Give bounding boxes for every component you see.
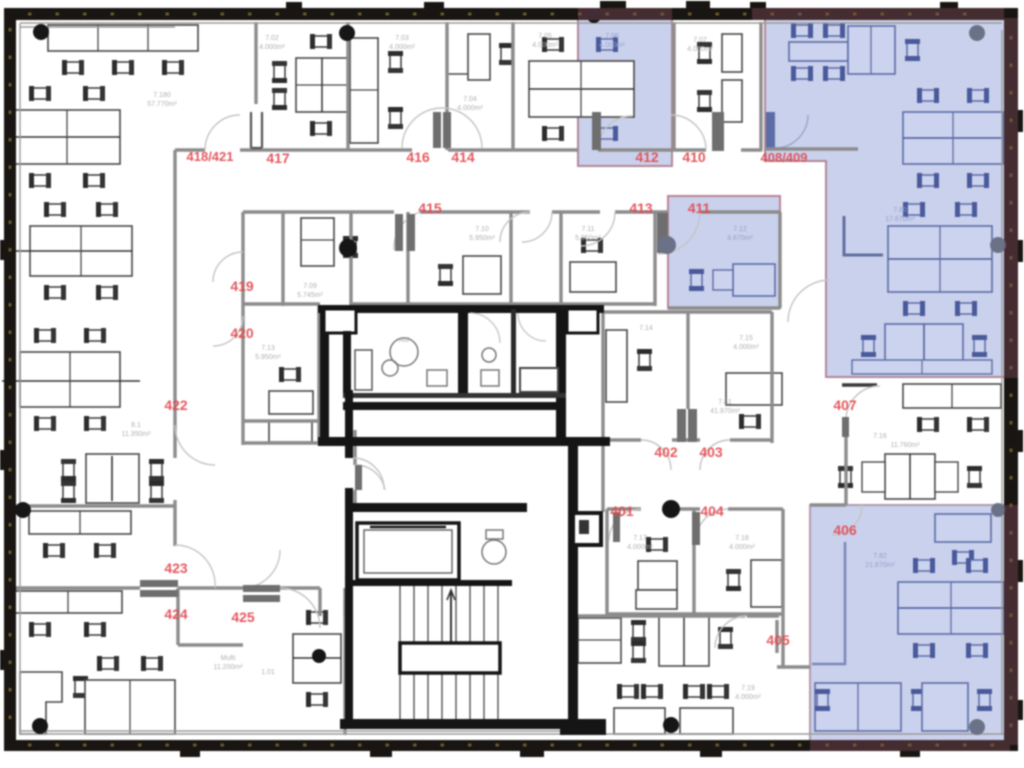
svg-text:7.12: 7.12 (733, 226, 747, 233)
svg-text:7.06: 7.06 (605, 33, 619, 40)
svg-text:4.000m²: 4.000m² (627, 544, 653, 551)
svg-text:7.02: 7.02 (265, 35, 279, 42)
svg-text:1.01: 1.01 (261, 669, 275, 676)
svg-text:7.03: 7.03 (395, 35, 409, 42)
svg-text:416: 416 (406, 149, 430, 165)
svg-text:4.000m²: 4.000m² (389, 44, 415, 51)
svg-text:423: 423 (164, 560, 188, 576)
svg-text:7.04: 7.04 (463, 96, 477, 103)
svg-text:418/421: 418/421 (187, 149, 234, 164)
svg-text:11.350m²: 11.350m² (121, 431, 151, 438)
svg-text:7.13: 7.13 (261, 345, 275, 352)
svg-text:7.82: 7.82 (873, 553, 887, 560)
svg-text:4.000m²: 4.000m² (532, 42, 558, 49)
svg-text:424: 424 (164, 606, 188, 622)
svg-text:Aul: Aul (399, 337, 410, 344)
svg-text:405: 405 (766, 632, 790, 648)
svg-text:5.950m²: 5.950m² (575, 235, 601, 242)
svg-text:5.950m²: 5.950m² (469, 235, 495, 242)
svg-text:4.000m²: 4.000m² (733, 344, 759, 351)
svg-text:5.950m²: 5.950m² (255, 354, 281, 361)
svg-text:7.19: 7.19 (741, 685, 755, 692)
svg-text:406: 406 (833, 522, 857, 538)
svg-text:419: 419 (230, 278, 254, 294)
svg-text:57.770m²: 57.770m² (147, 101, 177, 108)
svg-text:4.000m²: 4.000m² (457, 105, 483, 112)
svg-text:7.180: 7.180 (153, 92, 171, 99)
svg-text:403: 403 (699, 444, 723, 460)
svg-text:415: 415 (418, 200, 442, 216)
svg-text:412: 412 (635, 149, 659, 165)
svg-text:7.16: 7.16 (873, 433, 887, 440)
svg-text:7.09: 7.09 (303, 283, 317, 290)
svg-text:4.000m²: 4.000m² (729, 544, 755, 551)
svg-text:414: 414 (451, 149, 475, 165)
svg-text:404: 404 (700, 503, 724, 519)
svg-text:408/409: 408/409 (761, 150, 808, 165)
svg-text:407: 407 (833, 397, 857, 413)
svg-text:413: 413 (629, 200, 653, 216)
svg-text:21.870m²: 21.870m² (865, 562, 895, 569)
svg-text:7.80: 7.80 (893, 207, 907, 214)
svg-text:401: 401 (610, 503, 634, 519)
svg-text:8.1: 8.1 (131, 422, 141, 429)
svg-text:7.18: 7.18 (735, 535, 749, 542)
svg-text:7.14: 7.14 (639, 325, 653, 332)
svg-text:7.11: 7.11 (581, 226, 594, 233)
svg-text:425: 425 (231, 609, 255, 625)
svg-text:402: 402 (654, 444, 678, 460)
svg-text:7.07: 7.07 (693, 37, 707, 44)
svg-text:4.000m²: 4.000m² (687, 46, 713, 53)
svg-text:411: 411 (688, 200, 711, 216)
svg-text:7.81: 7.81 (718, 399, 732, 406)
svg-text:5.745m²: 5.745m² (297, 292, 323, 299)
svg-text:422: 422 (164, 397, 188, 413)
svg-text:410: 410 (682, 149, 706, 165)
svg-text:4.000m²: 4.000m² (599, 42, 625, 49)
svg-text:417: 417 (266, 150, 290, 166)
svg-text:7.05: 7.05 (538, 33, 552, 40)
svg-text:7.17: 7.17 (633, 535, 647, 542)
svg-text:17.670m²: 17.670m² (885, 216, 915, 223)
svg-text:420: 420 (230, 325, 254, 341)
svg-text:Multi: Multi (221, 655, 236, 662)
svg-text:41.970m²: 41.970m² (710, 408, 740, 415)
svg-text:4.000m²: 4.000m² (735, 694, 761, 701)
svg-text:7.10: 7.10 (475, 226, 489, 233)
svg-text:4.000m²: 4.000m² (259, 44, 285, 51)
svg-text:4.670m²: 4.670m² (727, 235, 753, 242)
svg-text:7.15: 7.15 (739, 335, 753, 342)
svg-text:11.760m²: 11.760m² (890, 442, 920, 449)
svg-text:11.200m²: 11.200m² (213, 664, 243, 671)
